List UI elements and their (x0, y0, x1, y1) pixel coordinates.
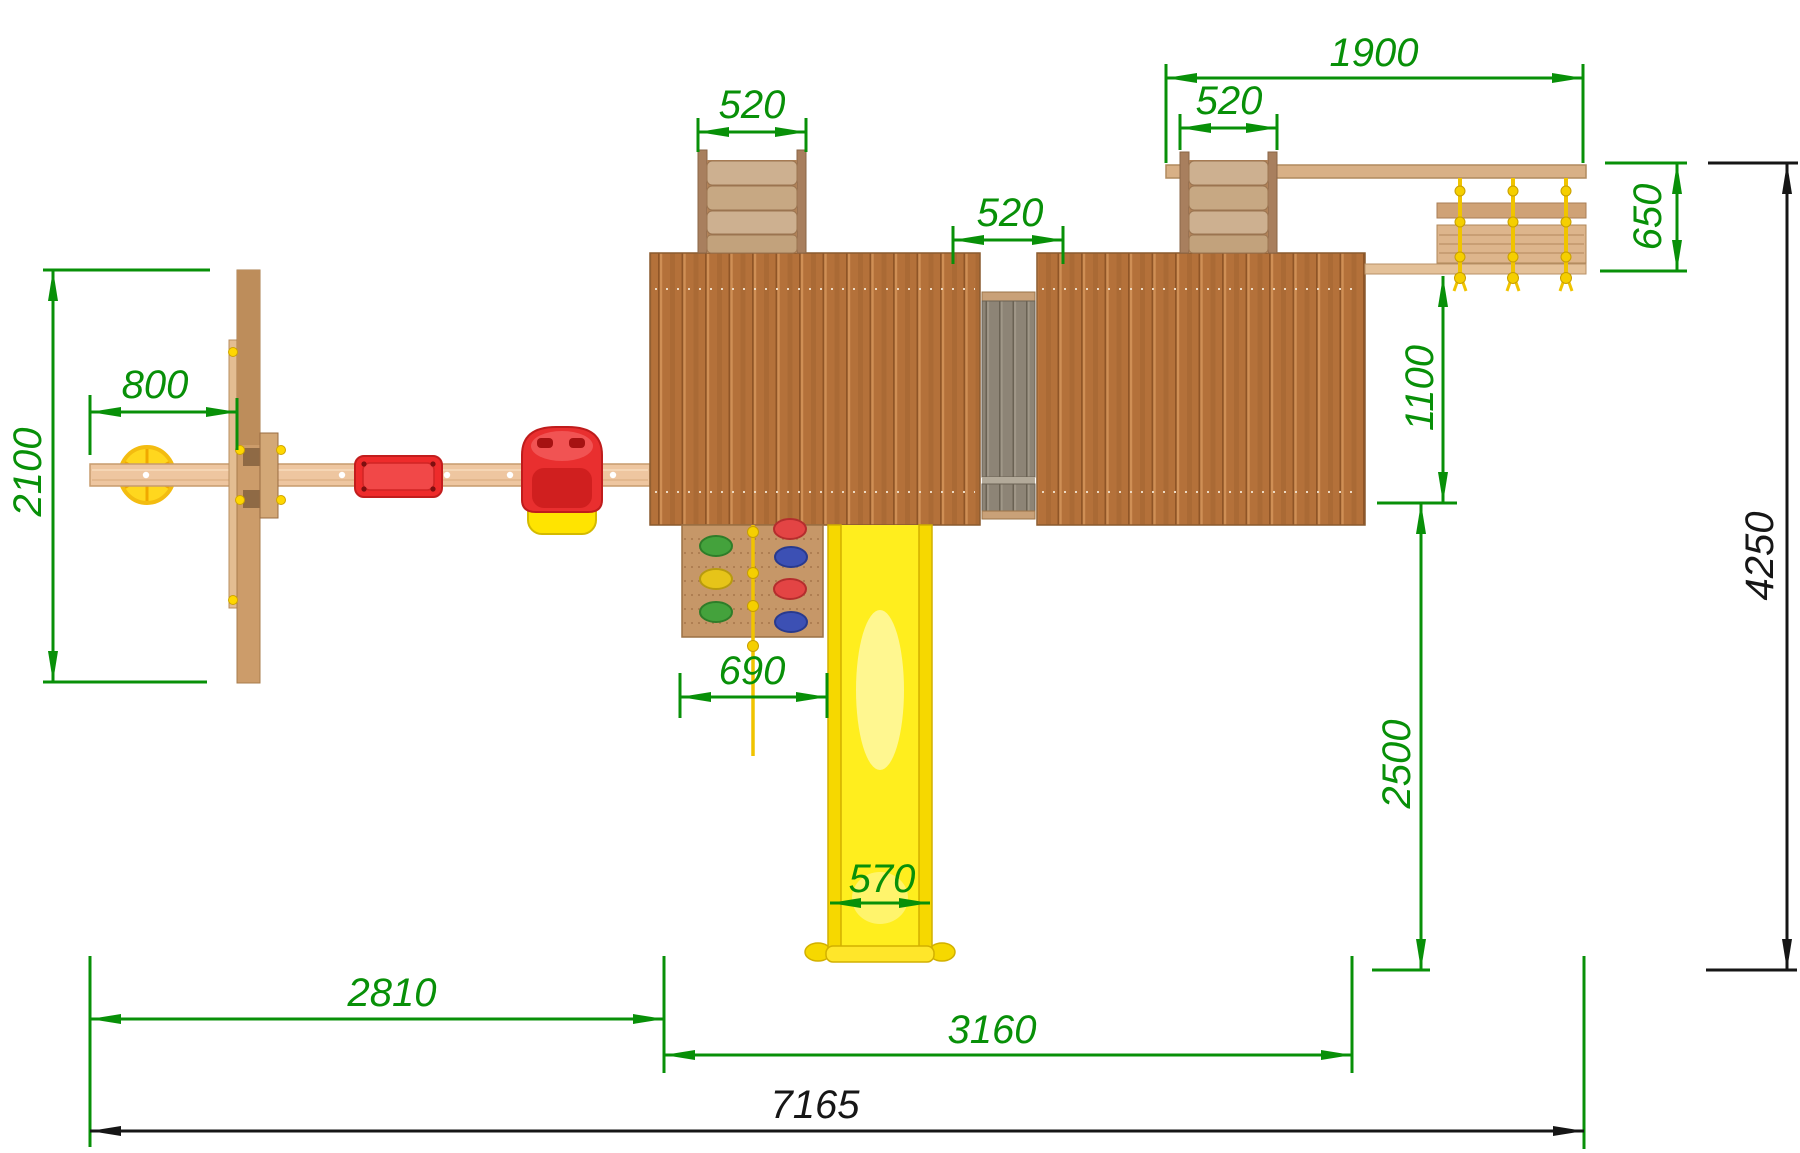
dim-label-650: 650 (1626, 184, 1670, 251)
dim-label-520-middle: 520 (977, 191, 1044, 235)
climb-hold-blue (775, 547, 807, 567)
frame-cap (277, 496, 286, 505)
dim-label-800: 800 (122, 363, 189, 407)
beam-bolt (507, 472, 513, 478)
left-tower-roof (650, 253, 980, 525)
right-ladder (1180, 152, 1277, 253)
baby-swing-seat (522, 427, 602, 534)
dim-label-1100: 1100 (1398, 345, 1442, 431)
dim-label-570: 570 (849, 857, 916, 901)
frame-cap (277, 446, 286, 455)
dim-label-2810: 2810 (347, 971, 437, 1015)
right-tower-roof (1037, 253, 1365, 525)
dim-label-4250: 4250 (1738, 512, 1782, 601)
beam-bolt (339, 472, 345, 478)
dim-label-2500: 2500 (1375, 720, 1419, 810)
frame-cap (229, 596, 238, 605)
beam-bolt (444, 472, 450, 478)
climb-hold-green (700, 536, 732, 556)
climb-hold-yellow (700, 569, 732, 589)
dim-label-690: 690 (719, 649, 786, 693)
flat-swing-seat (355, 456, 442, 497)
playground-plan-page: 1900 520 520 520 650 1100 2100 (0, 0, 1800, 1153)
dim-label-7165: 7165 (771, 1083, 861, 1127)
climb-hold-red (774, 519, 806, 539)
climb-hold-blue (775, 612, 807, 632)
dim-label-1900: 1900 (1330, 31, 1419, 75)
left-ladder (698, 150, 806, 253)
climb-hold-red (774, 579, 806, 599)
dim-label-3160: 3160 (948, 1008, 1037, 1052)
dim-label-520-right: 520 (1196, 79, 1263, 123)
frame-cap (236, 496, 245, 505)
middle-bridge (982, 292, 1035, 519)
climb-hold-green (700, 602, 732, 622)
beam-bolt (143, 472, 149, 478)
beam-bolt (610, 472, 616, 478)
frame-cap (229, 348, 238, 357)
dim-label-520-left: 520 (719, 83, 786, 127)
playground-plan-drawing: 1900 520 520 520 650 1100 2100 (0, 0, 1800, 1153)
dim-label-2100: 2100 (6, 428, 50, 518)
